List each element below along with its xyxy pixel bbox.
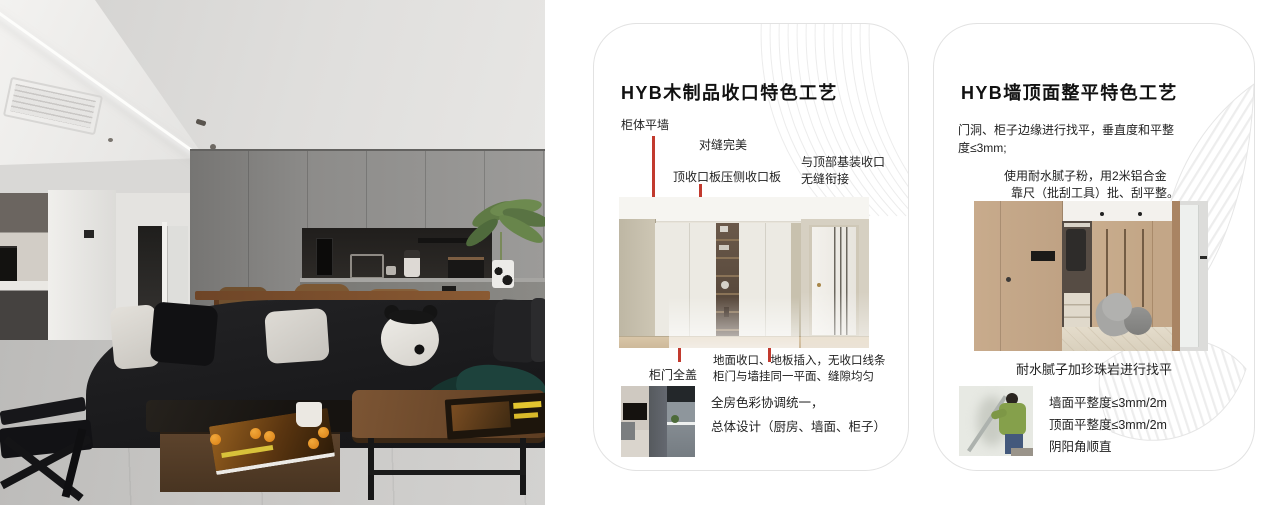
callout-ceiling-joint-line1: 与顶部基装收口 bbox=[801, 154, 885, 171]
closet-shelf bbox=[1064, 223, 1090, 227]
shelf-decor bbox=[721, 281, 729, 289]
photo-caption: 耐水腻子加珍珠岩进行找平 bbox=[934, 359, 1254, 378]
callout-floor-joint: 地面收口、地板插入，无收口线条 柜门与墙挂同一平面、缝隙均匀 bbox=[713, 353, 886, 385]
pillow-dark bbox=[531, 298, 545, 362]
shelf-decor bbox=[719, 245, 729, 250]
thumb-sofa bbox=[621, 422, 635, 440]
hidden-door-panel bbox=[974, 201, 1063, 351]
white-door bbox=[1180, 205, 1199, 347]
table-leg bbox=[520, 438, 526, 495]
table-stretcher bbox=[368, 470, 526, 475]
handle-groove bbox=[1142, 229, 1144, 307]
shelf-decor bbox=[720, 226, 728, 232]
thumb-kitchen-upper bbox=[667, 386, 695, 402]
render-glare bbox=[801, 292, 869, 348]
access-panel bbox=[1031, 251, 1055, 261]
built-in-appliance bbox=[0, 246, 17, 285]
room-ceiling bbox=[1062, 201, 1174, 221]
metal-rack bbox=[350, 254, 384, 279]
summary-line2: 总体设计（厨房、墙面、柜子） bbox=[711, 416, 886, 435]
card-title: HYB木制品收口特色工艺 bbox=[621, 79, 838, 105]
wardrobe-side bbox=[1152, 221, 1173, 333]
spec-line3: 阴阳角顺直 bbox=[1049, 436, 1112, 455]
countertop bbox=[0, 281, 55, 289]
magazine-title bbox=[221, 445, 273, 458]
panda-pillow bbox=[379, 306, 442, 369]
ceiling-spot bbox=[1100, 212, 1104, 216]
coffee-machine bbox=[316, 238, 333, 276]
door-knob bbox=[817, 283, 821, 287]
door-frame bbox=[1172, 201, 1180, 351]
closet-drawers bbox=[1064, 293, 1090, 331]
open-closet bbox=[1062, 221, 1092, 333]
hanging-clothes bbox=[1066, 229, 1086, 271]
orange-fruit bbox=[318, 427, 329, 438]
plant bbox=[462, 200, 545, 292]
magazine-title bbox=[513, 401, 541, 409]
ceiling-spot bbox=[108, 138, 113, 142]
mug bbox=[296, 402, 322, 427]
callout-ceiling-joint: 与顶部基装收口 无缝衔接 bbox=[801, 154, 885, 188]
callout-top-closing-board: 顶收口板压侧收口板 bbox=[673, 169, 781, 186]
orange-fruit bbox=[264, 431, 275, 442]
callout-perfect-seam: 对缝完美 bbox=[699, 137, 747, 154]
putty-paragraph-line1: 使用耐水腻子粉，用2米铝合金 bbox=[1004, 168, 1167, 185]
craft-card-wall-leveling: HYB墙顶面整平特色工艺 门洞、柜子边缘进行找平，垂直度和平整 度≤3mm; 使… bbox=[933, 23, 1255, 471]
callout-cabinet-flush-wall: 柜体平墙 bbox=[621, 117, 669, 134]
orange-fruit bbox=[308, 438, 319, 449]
door-handle bbox=[1200, 256, 1207, 259]
leveling-paragraph-line2: 度≤3mm; bbox=[958, 140, 1007, 157]
living-room-photo bbox=[0, 0, 545, 505]
render-left-wall bbox=[619, 219, 656, 340]
leveling-paragraph-line1: 门洞、柜子边缘进行找平，垂直度和平整 bbox=[958, 122, 1174, 139]
wardrobe-render-image bbox=[619, 197, 869, 348]
lounge-chair bbox=[0, 398, 110, 505]
kettle bbox=[386, 266, 396, 275]
callout-ceiling-joint-line2: 无缝衔接 bbox=[801, 171, 885, 188]
magazine-title bbox=[514, 412, 538, 419]
pillow-white bbox=[264, 308, 329, 364]
panel-seam bbox=[1000, 201, 1001, 351]
thumb-floor bbox=[1011, 448, 1033, 456]
orange-fruit bbox=[210, 434, 221, 445]
thumb-tv bbox=[623, 403, 647, 420]
card-title: HYB墙顶面整平特色工艺 bbox=[961, 79, 1178, 105]
thumb-plant bbox=[671, 415, 679, 423]
render-glare bbox=[669, 297, 799, 348]
putty-paragraph-line2: 靠尺（批刮工具）批、刮平整。 bbox=[1011, 185, 1179, 202]
magazine bbox=[445, 392, 545, 439]
page: HYB木制品收口特色工艺 柜体平墙 对缝完美 顶收口板压侧收口板 与顶部基装收口… bbox=[0, 0, 1280, 505]
dining-table bbox=[195, 291, 490, 300]
craft-card-woodwork: HYB木制品收口特色工艺 柜体平墙 对缝完美 顶收口板压侧收口板 与顶部基装收口… bbox=[593, 23, 909, 471]
callout-floor-joint-line1: 地面收口、地板插入，无收口线条 bbox=[713, 353, 886, 369]
magazine-photo bbox=[451, 401, 511, 431]
thumb-kitchen-lower bbox=[667, 425, 695, 457]
capsule-machine bbox=[404, 250, 420, 277]
orange-fruit bbox=[250, 428, 261, 439]
callout-full-cover-door: 柜门全盖 bbox=[649, 367, 697, 384]
door-handle bbox=[1006, 277, 1011, 282]
worker-thumbnail bbox=[959, 386, 1033, 456]
spec-line2: 顶面平整度≤3mm/2m bbox=[1049, 414, 1167, 433]
thumb-gray-column bbox=[649, 386, 667, 457]
ceiling-spot bbox=[1138, 212, 1142, 216]
spec-line1: 墙面平整度≤3mm/2m bbox=[1049, 392, 1167, 411]
summary-line1: 全房色彩协调统一， bbox=[711, 392, 824, 411]
pillow-black bbox=[150, 301, 219, 366]
plant-pot bbox=[492, 260, 514, 288]
light-switch bbox=[84, 230, 94, 238]
interior-thumbnail bbox=[621, 386, 695, 457]
table-leg bbox=[368, 438, 374, 500]
callout-floor-joint-line2: 柜门与墙挂同一平面、缝隙均匀 bbox=[713, 369, 886, 385]
doorway-right bbox=[1172, 201, 1208, 351]
wood-room-photo bbox=[974, 201, 1208, 351]
